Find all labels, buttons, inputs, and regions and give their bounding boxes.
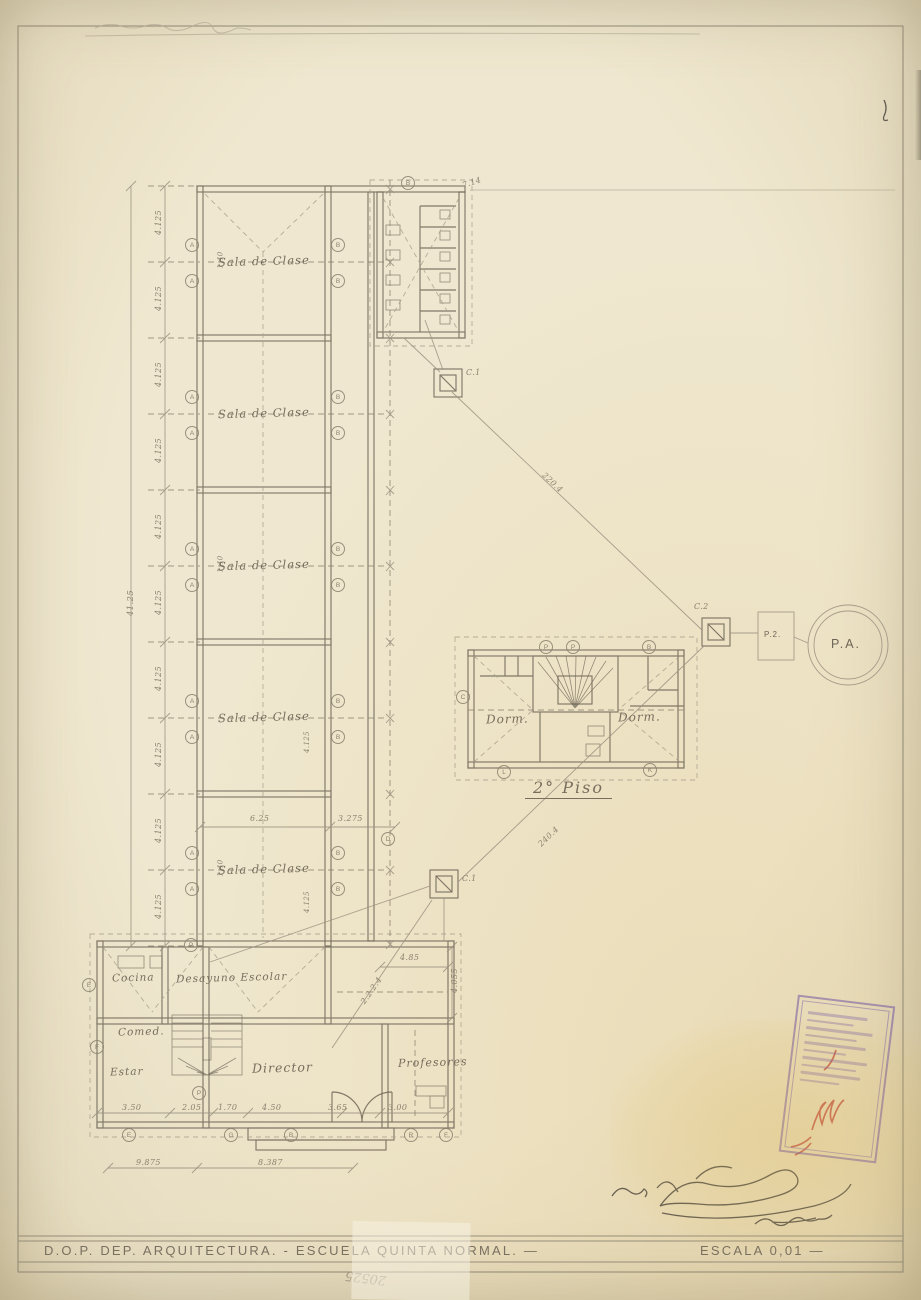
room-label-sala-3: Sala de Clase (218, 709, 310, 725)
grid-bubble-p-22: P (539, 640, 553, 654)
grid-bubble-a-8: A (185, 846, 199, 860)
scale-text: ESCALA 0,01 — (700, 1243, 825, 1258)
grid-bubble-a-1: A (185, 274, 199, 288)
grid-bubble-p-30: P (184, 938, 198, 952)
chamber-c2 (702, 618, 730, 646)
grid-bubble-a-7: A (185, 730, 199, 744)
grid-bubble-a-0: A (185, 238, 199, 252)
grid-bubble-c-25: C (456, 690, 470, 704)
room-label-profesores: Profesores (398, 1055, 468, 1070)
room-label-comedor: Comed. (118, 1025, 165, 1038)
room-label-cocina: Cocina (112, 971, 155, 984)
grid-bubble-b-19: B (331, 882, 345, 896)
plan-title-second-floor: 2° Piso (525, 778, 612, 799)
dim-4125-7: 4.125 (154, 742, 163, 767)
dim-4125-6: 4.125 (154, 666, 163, 691)
grid-bubble-r-35: R (404, 1128, 418, 1142)
dim-4125-2: 4.125 (154, 362, 163, 387)
room-label-sala-1: Sala de Clase (218, 405, 310, 421)
dimension-lines (97, 186, 452, 1168)
dim-total-4125: 41.25 (126, 590, 136, 616)
grid-bubble-e-28: E (82, 978, 96, 992)
blueprint-sheet: Cocina Desayuno Escolar Comed. Estar Dir… (0, 0, 921, 1300)
grid-bubble-f-29: F (90, 1040, 104, 1054)
grid-bubble-a-2: A (185, 390, 199, 404)
grid-bubble-a-4: A (185, 542, 199, 556)
room-label-director: Director (252, 1059, 313, 1076)
dim-4125-3: 4.125 (154, 438, 163, 463)
grid-bubble-b-10: B (331, 238, 345, 252)
dim-r1: 9.875 (136, 1158, 161, 1167)
grid-bubble-d-21: D (381, 832, 395, 846)
sheet-frame (18, 26, 903, 1272)
grid-bubble-a-9: A (185, 882, 199, 896)
sewer-lines (210, 320, 808, 1048)
grid-bubble-g-33: G (224, 1128, 238, 1142)
pencil-lines (85, 22, 895, 190)
dim-4125-1: 4.125 (154, 286, 163, 311)
grid-bubble-b-15: B (331, 578, 345, 592)
label-c1-lower: C.1 (462, 874, 477, 883)
label-p2: P.2. (764, 630, 781, 639)
grid-bubble-b-24: B (642, 640, 656, 654)
grid-bubble-b-34: B (284, 1128, 298, 1142)
grid-bubble-p-23: P (566, 640, 580, 654)
room-label-sala-4: Sala de Clase (218, 861, 310, 877)
label-pa: P.A. (831, 637, 861, 651)
dim-b1: 3.50 (122, 1103, 141, 1112)
dim-4055: 4.055 (450, 968, 459, 993)
grid-bubble-a-6: A (185, 694, 199, 708)
archive-stamp-inner-border (784, 1000, 889, 1158)
grid-bubble-a-3: A (185, 426, 199, 440)
tank-p2-and-well-pa (758, 605, 888, 685)
pencil-note (95, 22, 251, 33)
room-label-sala-0: Sala de Clase (218, 253, 310, 269)
grid-bubble-k-27: K (643, 763, 657, 777)
dim-4125-5: 4.125 (154, 590, 163, 615)
grid-bubble-b-13: B (331, 426, 345, 440)
dim-r2: 8.387 (258, 1158, 283, 1167)
grid-bubble-b-20: B (401, 176, 415, 190)
grid-bubble-f-36: F (439, 1128, 453, 1142)
grid-bubble-e-32: E (122, 1128, 136, 1142)
label-c2: C.2 (694, 602, 709, 611)
grid-bubble-b-12: B (331, 390, 345, 404)
chamber-c1-lower (430, 870, 458, 898)
grid-bubble-a-5: A (185, 578, 199, 592)
grid-bubble-b-18: B (331, 846, 345, 860)
dim-4125-4: 4.125 (154, 514, 163, 539)
dim-b2: 2.05 (182, 1103, 201, 1112)
dim-b5: 3.65 (328, 1103, 347, 1112)
grid-bubble-b-14: B (331, 542, 345, 556)
dim-4125-corridor-a: 4.125 (303, 731, 311, 753)
grid-bubble-b-17: B (331, 730, 345, 744)
dim-room-width: 6.25 (250, 814, 269, 823)
room-label-dorm-left: Dorm. (486, 711, 529, 726)
room-label-dorm-right: Dorm. (618, 709, 661, 724)
dim-4125-0: 4.125 (154, 210, 163, 235)
label-c1-upper: C.1 (466, 368, 481, 377)
dim-4125-corridor-b: 4.125 (303, 891, 311, 913)
dim-b4: 4.50 (262, 1103, 281, 1112)
grid-bubble-p-31: P (192, 1086, 206, 1100)
archive-stamp (779, 995, 896, 1164)
dim-b6: 3.00 (388, 1103, 407, 1112)
dim-corridor: 3.275 (338, 814, 363, 823)
room-label-estar: Estar (110, 1066, 144, 1079)
dim-b3: 1.70 (218, 1103, 237, 1112)
grid-bubble-l-26: L (497, 765, 511, 779)
dim-4125-8: 4.125 (154, 818, 163, 843)
roof-dashed-lines (90, 180, 697, 1137)
chamber-c1-upper (434, 369, 462, 397)
dim-485: 4.85 (400, 953, 419, 962)
dim-4125-9: 4.125 (154, 894, 163, 919)
grid-bubble-b-11: B (331, 274, 345, 288)
grid-bubble-b-16: B (331, 694, 345, 708)
second-floor-stair (538, 656, 613, 756)
title-block-text: D.O.P. DEP. ARQUITECTURA. - ESCUELA QUIN… (44, 1243, 539, 1258)
room-label-sala-2: Sala de Clase (218, 557, 310, 573)
